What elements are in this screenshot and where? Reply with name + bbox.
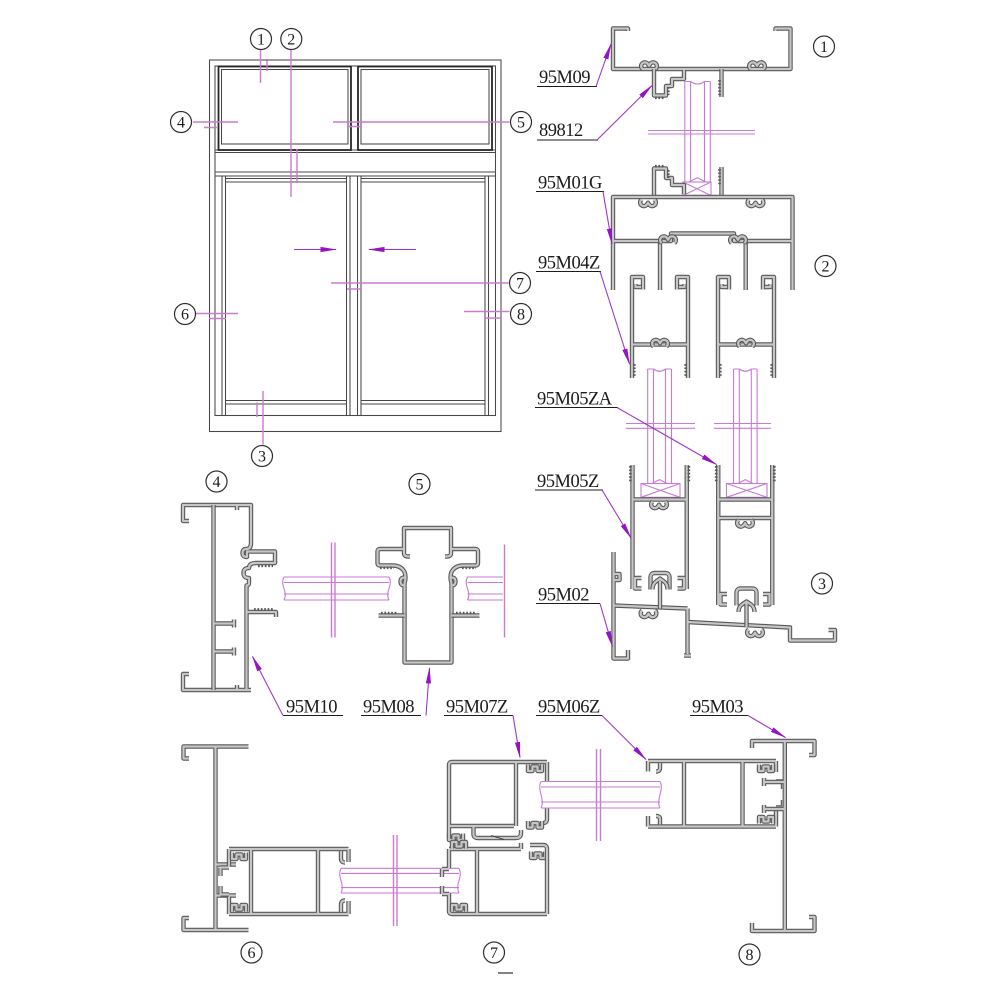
svg-text:3: 3 [258,449,266,466]
svg-text:8: 8 [746,947,754,964]
svg-text:4: 4 [177,115,185,132]
svg-text:95M02: 95M02 [538,586,589,606]
svg-text:95M10: 95M10 [286,698,337,718]
svg-text:95M03: 95M03 [692,698,743,718]
svg-text:95M04Z: 95M04Z [538,254,600,274]
svg-text:6: 6 [248,945,256,962]
svg-text:3: 3 [818,576,826,593]
svg-text:1: 1 [820,39,828,56]
svg-text:1: 1 [257,32,265,49]
svg-text:6: 6 [181,307,189,324]
svg-text:7: 7 [490,945,498,962]
svg-text:95M07Z: 95M07Z [446,698,508,718]
svg-text:7: 7 [516,276,524,293]
svg-text:95M05Z: 95M05Z [537,472,599,492]
svg-text:95M06Z: 95M06Z [538,698,600,718]
svg-text:95M05ZA: 95M05ZA [537,390,613,410]
svg-text:2: 2 [287,32,295,49]
svg-text:8: 8 [517,307,525,324]
svg-text:95M01G: 95M01G [538,174,602,194]
svg-text:5: 5 [517,115,525,132]
svg-text:89812: 89812 [539,121,583,141]
svg-text:95M08: 95M08 [363,698,414,718]
svg-text:95M09: 95M09 [539,68,590,88]
svg-text:4: 4 [213,474,221,491]
svg-text:5: 5 [416,477,424,494]
svg-text:2: 2 [822,259,830,276]
